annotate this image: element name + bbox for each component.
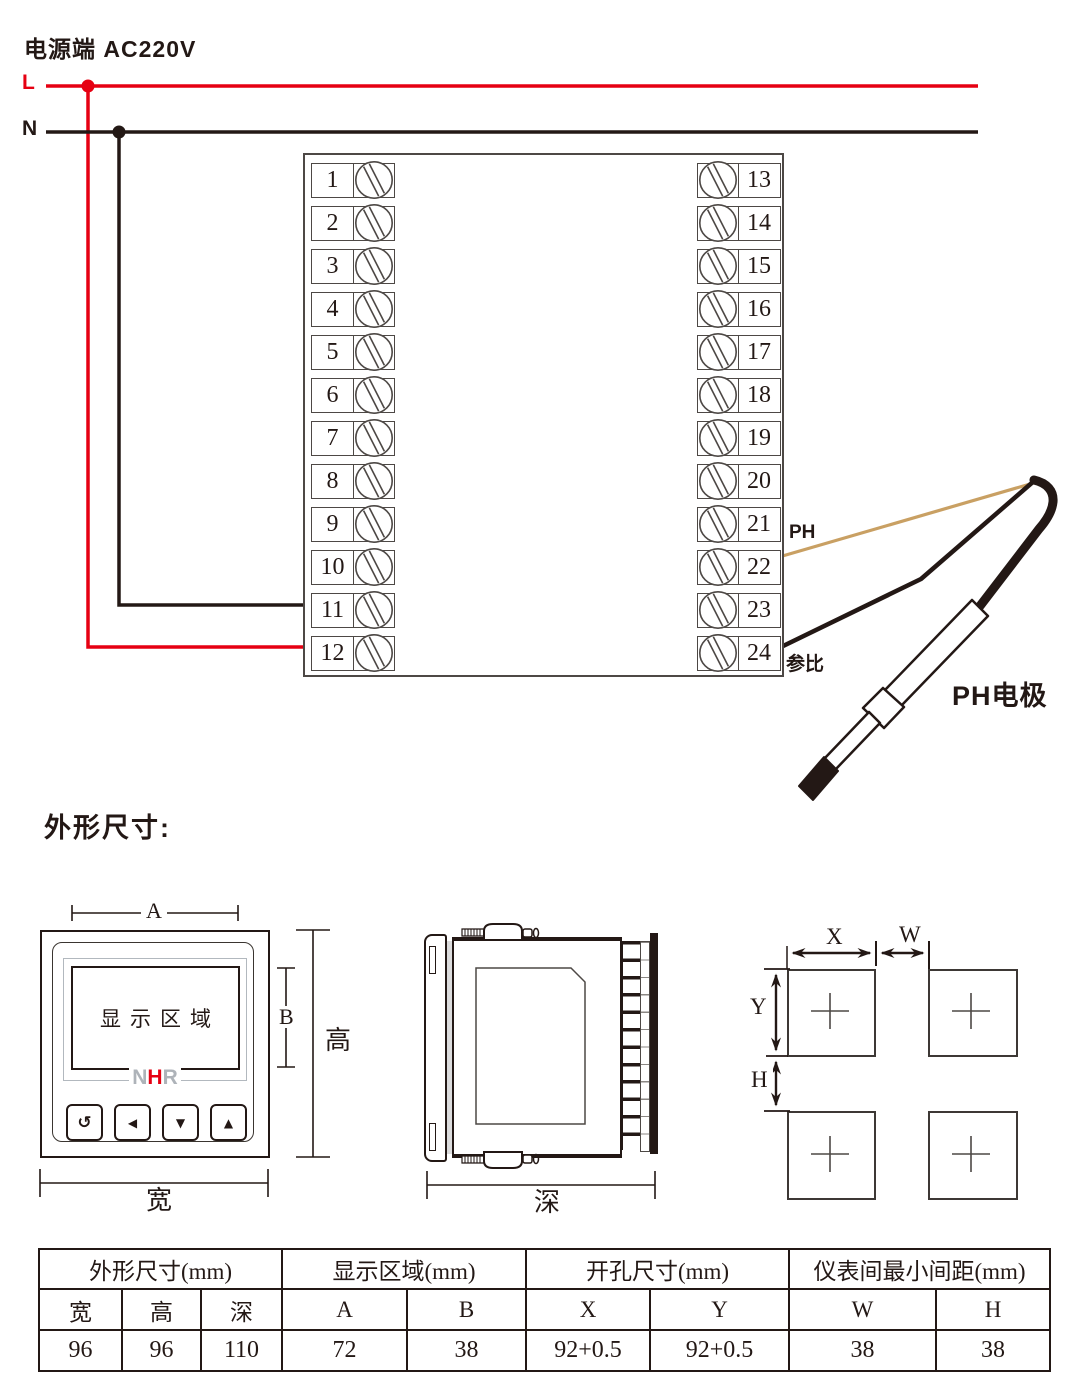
- down-icon: ▼: [176, 1116, 185, 1130]
- terminal-screw: [697, 421, 739, 456]
- side-view-terminal-strip-outer: [640, 941, 650, 1152]
- terminal-15: 15: [697, 249, 781, 282]
- side-view-bezel-slot-bottom: [429, 1123, 436, 1151]
- table-value: 96: [39, 1330, 122, 1371]
- terminal-screw: [697, 636, 739, 671]
- terminal-screw: [353, 292, 395, 327]
- table-group-header: 开孔尺寸(mm): [526, 1249, 789, 1289]
- terminal-18: 18: [697, 378, 781, 411]
- screw-icon: [354, 590, 394, 630]
- neutral-junction-dot: [113, 126, 126, 139]
- dim-b-label: B: [274, 1006, 299, 1028]
- dim-h-label: H: [746, 1068, 773, 1091]
- screw-icon: [698, 332, 738, 372]
- terminal-number: 18: [738, 378, 781, 413]
- table-value: 38: [407, 1330, 526, 1371]
- cutout-square-3: [787, 1111, 876, 1200]
- terminal-number: 8: [311, 464, 354, 499]
- down-button: ▼: [162, 1104, 199, 1141]
- terminal-screw: [353, 335, 395, 370]
- screw-icon: [354, 633, 394, 673]
- screw-icon: [354, 418, 394, 458]
- dim-y-label: Y: [745, 995, 772, 1018]
- screw-icon: [354, 461, 394, 501]
- terminal-number: 12: [311, 636, 354, 671]
- terminal-11: 11: [311, 593, 395, 626]
- terminal-screw: [697, 378, 739, 413]
- terminal-1: 1: [311, 163, 395, 196]
- terminal-10: 10: [311, 550, 395, 583]
- electrode-cable: [980, 480, 1053, 606]
- terminal-screw: [697, 507, 739, 542]
- screw-icon: [698, 504, 738, 544]
- live-junction-dot: [82, 80, 95, 93]
- table-value: 92+0.5: [526, 1330, 650, 1371]
- terminal-number: 10: [311, 550, 354, 585]
- screw-icon: [354, 246, 394, 286]
- side-view-rear-bar: [650, 933, 658, 1154]
- dimension-spec-table: 外形尺寸(mm)显示区域(mm)开孔尺寸(mm)仪表间最小间距(mm)宽高深AB…: [38, 1248, 1051, 1372]
- terminal-number: 4: [311, 292, 354, 327]
- terminal-number: 2: [311, 206, 354, 241]
- terminal-number: 17: [738, 335, 781, 370]
- terminal-screw: [353, 593, 395, 628]
- terminal-24: 24: [697, 636, 781, 669]
- logo-letter-h: H: [147, 1066, 162, 1089]
- screw-icon: [354, 375, 394, 415]
- screw-icon: [698, 375, 738, 415]
- screw-icon: [354, 203, 394, 243]
- terminal-screw: [353, 163, 395, 198]
- left-button: ◀: [114, 1104, 151, 1141]
- cycle-icon: ↺: [77, 1113, 91, 1133]
- terminal-screw: [697, 249, 739, 284]
- logo-letter-r: R: [163, 1066, 178, 1089]
- terminal-block: 123456789101112131415161718192021222324: [303, 153, 784, 677]
- power-title: 电源端 AC220V: [24, 30, 196, 64]
- terminal-9: 9: [311, 507, 395, 540]
- electrode-tip: [799, 757, 838, 800]
- terminal-number: 24: [738, 636, 781, 671]
- clamp-screw-thread-top: [462, 929, 484, 936]
- terminal-21: 21: [697, 507, 781, 540]
- terminal-6: 6: [311, 378, 395, 411]
- terminal-number: 7: [311, 421, 354, 456]
- cutout-square-2: [928, 969, 1018, 1057]
- terminal-screw: [353, 636, 395, 671]
- display-area-text: 显示区域: [91, 1003, 220, 1033]
- table-sub-header: X: [526, 1289, 650, 1330]
- electrode-name: PH电极: [952, 674, 1048, 713]
- terminal-number: 23: [738, 593, 781, 628]
- screw-icon: [354, 547, 394, 587]
- table-group-header: 显示区域(mm): [282, 1249, 526, 1289]
- screw-icon: [354, 160, 394, 200]
- terminal-7: 7: [311, 421, 395, 454]
- screw-icon: [698, 547, 738, 587]
- live-line-label: L: [22, 71, 35, 95]
- terminal-number: 21: [738, 507, 781, 542]
- terminal-23: 23: [697, 593, 781, 626]
- terminal-14: 14: [697, 206, 781, 239]
- electrode-joint: [863, 688, 904, 728]
- terminal-22: 22: [697, 550, 781, 583]
- outline-dimensions-heading: 外形尺寸:: [44, 806, 171, 845]
- terminal-number: 19: [738, 421, 781, 456]
- electrode-shaft: [824, 712, 880, 770]
- logo-letter-n: N: [132, 1066, 147, 1089]
- terminal-screw: [353, 249, 395, 284]
- screw-icon: [354, 332, 394, 372]
- cutout-square-4: [928, 1111, 1018, 1200]
- terminal-screw: [353, 206, 395, 241]
- clamp-screw-head-top: [523, 929, 532, 937]
- brand-logo: NHR: [129, 1067, 181, 1088]
- terminal-20: 20: [697, 464, 781, 497]
- screw-icon: [698, 203, 738, 243]
- terminal-12: 12: [311, 636, 395, 669]
- terminal-number: 3: [311, 249, 354, 284]
- table-group-header: 外形尺寸(mm): [39, 1249, 282, 1289]
- table-sub-header: Y: [650, 1289, 789, 1330]
- up-button: ▲: [210, 1104, 247, 1141]
- table-sub-header: W: [789, 1289, 936, 1330]
- terminal-number: 1: [311, 163, 354, 198]
- terminal-number: 14: [738, 206, 781, 241]
- table-sub-header: 高: [122, 1289, 201, 1330]
- side-view-case: [452, 937, 622, 1158]
- terminal-4: 4: [311, 292, 395, 325]
- terminal-screw: [697, 163, 739, 198]
- terminal-screw: [353, 378, 395, 413]
- screw-icon: [698, 461, 738, 501]
- reference-wire: [779, 481, 1034, 648]
- table-sub-header: 深: [201, 1289, 282, 1330]
- ph-wire: [779, 482, 1037, 557]
- terminal-5: 5: [311, 335, 395, 368]
- table-value: 72: [282, 1330, 407, 1371]
- screw-icon: [354, 504, 394, 544]
- neutral-line-label: N: [22, 117, 37, 141]
- terminal-8: 8: [311, 464, 395, 497]
- screw-icon: [354, 289, 394, 329]
- dim-height-label: 高: [320, 1028, 356, 1054]
- screw-icon: [698, 246, 738, 286]
- reference-wire-label: 参比: [786, 649, 824, 676]
- dim-w-label: W: [894, 923, 926, 946]
- dim-x-label: X: [821, 925, 848, 948]
- terminal-number: 13: [738, 163, 781, 198]
- terminal-number: 20: [738, 464, 781, 499]
- side-view-terminal-strip: [620, 941, 642, 1150]
- terminal-screw: [353, 464, 395, 499]
- table-value: 96: [122, 1330, 201, 1371]
- terminal-number: 22: [738, 550, 781, 585]
- terminal-screw: [697, 464, 739, 499]
- ph-wire-label: PH: [789, 522, 815, 544]
- terminal-19: 19: [697, 421, 781, 454]
- terminal-screw: [353, 507, 395, 542]
- table-value: 110: [201, 1330, 282, 1371]
- table-value: 38: [789, 1330, 936, 1371]
- live-branch-wire: [88, 86, 306, 647]
- dim-depth-label: 深: [529, 1190, 565, 1216]
- up-icon: ▲: [224, 1116, 233, 1130]
- screw-icon: [698, 418, 738, 458]
- left-icon: ◀: [128, 1116, 137, 1130]
- terminal-number: 9: [311, 507, 354, 542]
- table-value: 38: [936, 1330, 1050, 1371]
- instrument-wiring-and-dimension-diagram: 电源端 AC220V L N 1234567891011121314151617…: [0, 0, 1080, 1396]
- screw-icon: [698, 590, 738, 630]
- terminal-screw: [697, 335, 739, 370]
- terminal-screw: [353, 550, 395, 585]
- terminal-screw: [697, 292, 739, 327]
- screw-icon: [698, 289, 738, 329]
- terminal-screw: [353, 421, 395, 456]
- screw-icon: [698, 633, 738, 673]
- terminal-number: 5: [311, 335, 354, 370]
- table-sub-header: A: [282, 1289, 407, 1330]
- neutral-branch-wire: [119, 132, 306, 605]
- terminal-screw: [697, 206, 739, 241]
- terminal-13: 13: [697, 163, 781, 196]
- table-sub-header: 宽: [39, 1289, 122, 1330]
- terminal-number: 11: [311, 593, 354, 628]
- terminal-number: 16: [738, 292, 781, 327]
- terminal-17: 17: [697, 335, 781, 368]
- table-group-header: 仪表间最小间距(mm): [789, 1249, 1050, 1289]
- terminal-16: 16: [697, 292, 781, 325]
- terminal-number: 15: [738, 249, 781, 284]
- terminal-number: 6: [311, 378, 354, 413]
- table-sub-header: H: [936, 1289, 1050, 1330]
- table-sub-header: B: [407, 1289, 526, 1330]
- dim-a-label: A: [141, 900, 167, 922]
- terminal-screw: [697, 593, 739, 628]
- dim-width-label: 宽: [141, 1188, 177, 1214]
- display-area: 显示区域: [71, 966, 240, 1070]
- side-view-bezel-slot-top: [429, 946, 436, 974]
- cutout-square-1: [787, 969, 876, 1057]
- cycle-button: ↺: [66, 1104, 103, 1141]
- terminal-2: 2: [311, 206, 395, 239]
- table-value: 92+0.5: [650, 1330, 789, 1371]
- terminal-3: 3: [311, 249, 395, 282]
- terminal-screw: [697, 550, 739, 585]
- screw-icon: [698, 160, 738, 200]
